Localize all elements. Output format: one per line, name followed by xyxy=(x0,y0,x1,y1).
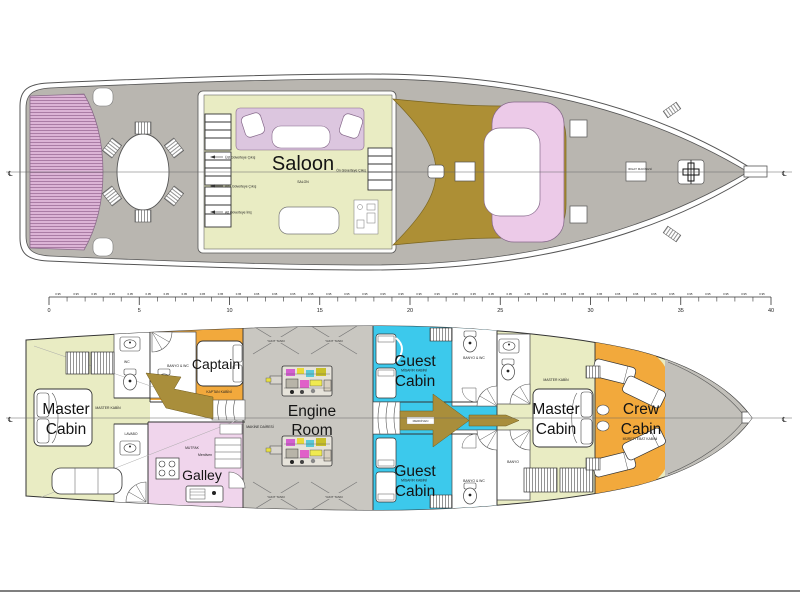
ruler-minor-label: 0.95 xyxy=(91,292,97,296)
toilet xyxy=(502,359,515,380)
toilet xyxy=(124,369,137,390)
ruler-minor-label: 0.95 xyxy=(290,292,296,296)
ruler-minor-label: 0.95 xyxy=(73,292,79,296)
crew-locker xyxy=(586,366,600,378)
guest-upper-bath-label: BANYO & WC xyxy=(463,356,485,360)
foredeck-hatch xyxy=(455,162,475,181)
crew-sink xyxy=(597,405,609,415)
ruler-major-label: 25 xyxy=(497,308,503,314)
ruler-minor-label: 0.95 xyxy=(597,292,603,296)
ruler-minor-label: 0.95 xyxy=(488,292,494,296)
wardrobe xyxy=(66,352,89,374)
ruler-major-label: 30 xyxy=(587,308,593,314)
ruler-major-label: 40 xyxy=(768,308,774,314)
guest-lower-label-1: Guest xyxy=(394,463,436,480)
ruler-minor-label: 0.95 xyxy=(759,292,765,296)
exit-lower-deck-label: Alt Güverteye İniş xyxy=(225,209,252,214)
ruler-minor-label: 0.95 xyxy=(218,292,224,296)
lavabo-label: LAVABO xyxy=(124,432,137,436)
galley-stairs xyxy=(215,438,241,468)
ruler-major-label: 15 xyxy=(317,308,323,314)
galley-label: Galley xyxy=(182,467,222,483)
ruler-minor-label: 0.95 xyxy=(146,292,152,296)
ruler-major-label: 10 xyxy=(226,308,232,314)
saloon-stairs-starboard xyxy=(368,148,392,190)
ruler-minor-label: 0.95 xyxy=(380,292,386,296)
ruler-minor-label: 0.95 xyxy=(362,292,368,296)
deck-plan-drawing: YAKIT TANKI xyxy=(0,0,800,599)
ruler-minor-label: 0.95 xyxy=(651,292,657,296)
exit-main-deck-label: Ana Güverteye Çıkış xyxy=(225,184,257,188)
engine-room-label-2: Room xyxy=(291,422,332,439)
captain-label: Captain xyxy=(192,356,240,372)
ruler-minor-label: 0.95 xyxy=(109,292,115,296)
stairs-label-galley: Merdiven xyxy=(198,453,212,457)
exit-upper-deck-label: Üst Güverteye Çıkış xyxy=(225,155,256,159)
bow-tip-fitting xyxy=(742,412,760,423)
master-fwd-sublabel: MASTER KABİN xyxy=(543,377,569,382)
aft-step-notch xyxy=(93,238,113,256)
centerline-mark-right: ℄ xyxy=(782,170,787,178)
wardrobe xyxy=(91,352,114,374)
guest-upper-sublabel: MİSAFİR KABİNİ xyxy=(401,368,427,373)
wc-label: WC xyxy=(124,360,130,364)
ruler-minor-label: 0.95 xyxy=(470,292,476,296)
galley-cabinet xyxy=(220,424,242,434)
master-aft-label-1: Master xyxy=(42,401,89,418)
ruler-minor-label: 0.95 xyxy=(164,292,170,296)
bow-cleat xyxy=(663,102,681,118)
crew-label-1: Crew xyxy=(623,401,660,418)
ruler-minor-label: 0.95 xyxy=(507,292,513,296)
ruler-minor-label: 0.95 xyxy=(741,292,747,296)
ruler-minor-label: 0.95 xyxy=(687,292,693,296)
crew-label-2: Cabin xyxy=(621,421,662,438)
windlass-label: IRGAT MAKİNESİ xyxy=(628,166,652,171)
guest-lower-bath-label: BANYO & WC xyxy=(463,479,485,483)
ruler-minor-label: 0.95 xyxy=(326,292,332,296)
centerline-mark-left-lower: ℄ xyxy=(8,416,13,424)
guest-upper-label-2: Cabin xyxy=(395,373,436,390)
yacht-deck-plan: YAKIT TANKI xyxy=(0,0,800,599)
washbasin xyxy=(120,337,140,351)
crew-locker xyxy=(586,458,600,470)
saloon-pantry-fixtures xyxy=(354,200,378,234)
chair xyxy=(135,122,151,134)
master-fwd-bath-label: BANYO xyxy=(507,460,519,464)
galley-sink-unit xyxy=(186,486,223,502)
toilet xyxy=(464,331,477,352)
upper-deck-plan: Saloon SALON Üst Güverteye Çıkış Ana Güv… xyxy=(6,74,792,270)
guest-lower-label-2: Cabin xyxy=(395,483,436,500)
galley-stove xyxy=(156,458,179,479)
ruler-major-label: 20 xyxy=(407,308,413,314)
ruler-minor-label: 0.95 xyxy=(272,292,278,296)
ruler-minor-label: 0.95 xyxy=(55,292,61,296)
bow-cleat xyxy=(663,226,681,242)
ruler-minor-label: 0.95 xyxy=(525,292,531,296)
centerline-mark-right-lower: ℄ xyxy=(782,416,787,424)
ruler-minor-label: 0.95 xyxy=(543,292,549,296)
ruler-minor-label: 0.95 xyxy=(182,292,188,296)
master-fwd-label-2: Cabin xyxy=(536,421,577,438)
scale-ruler: 00.950.950.950.950.9550.950.950.950.950.… xyxy=(47,292,774,314)
master-aft-sublabel: MASTER KABİN xyxy=(95,405,121,410)
foredeck-hatch-small xyxy=(428,165,444,178)
stairs-label-corridor: MERDİVEN xyxy=(413,418,429,423)
ruler-minor-label: 0.95 xyxy=(561,292,567,296)
guest-upper-label-1: Guest xyxy=(394,353,436,370)
master-aft-label-2: Cabin xyxy=(46,421,87,438)
ruler-minor-label: 0.95 xyxy=(236,292,242,296)
saloon-seating xyxy=(279,207,339,234)
bowsprit xyxy=(744,166,767,177)
lower-deck-plan: Master Cabin MASTER KABİN LAVABO WC BANY… xyxy=(6,318,792,516)
ruler-minor-label: 0.95 xyxy=(669,292,675,296)
ruler-minor-label: 0.95 xyxy=(344,292,350,296)
ruler-major-label: 5 xyxy=(138,308,141,314)
aft-step-notch xyxy=(93,88,113,106)
ruler-minor-label: 0.95 xyxy=(723,292,729,296)
ruler-major-label: 35 xyxy=(678,308,684,314)
saloon-sublabel: SALON xyxy=(297,180,309,184)
ruler-minor-label: 0.95 xyxy=(452,292,458,296)
ruler-minor-label: 0.95 xyxy=(705,292,711,296)
washbasin xyxy=(499,339,519,353)
ruler-minor-label: 0.95 xyxy=(434,292,440,296)
ruler-minor-label: 0.95 xyxy=(633,292,639,296)
galley-sublabel: MUTFAK xyxy=(185,446,199,450)
engine-room-label-1: Engine xyxy=(288,403,336,420)
master-fwd-label-1: Master xyxy=(532,401,579,418)
guest-lower-sublabel: MİSAFİR KABİNİ xyxy=(401,478,427,483)
wardrobe xyxy=(430,328,452,341)
ruler-minor-label: 0.95 xyxy=(416,292,422,296)
anchor-locker-hatch xyxy=(626,162,646,181)
captain-bath-label: BANYO & WC xyxy=(167,364,189,368)
engine-room-sublabel: MAKİNE DAİRESİ xyxy=(246,424,274,429)
wardrobe xyxy=(524,468,557,492)
ruler-minor-label: 0.95 xyxy=(615,292,621,296)
ruler-minor-label: 0.95 xyxy=(579,292,585,296)
deck-hatch xyxy=(570,206,587,223)
crew-sublabel: MÜRETTEBAT KABİNİ xyxy=(623,436,658,441)
chair xyxy=(135,210,151,222)
toilet xyxy=(464,483,477,504)
centerline-mark-left: ℄ xyxy=(8,170,13,178)
washbasin xyxy=(120,441,140,455)
ruler-minor-label: 0.95 xyxy=(200,292,206,296)
ruler-minor-label: 0.95 xyxy=(308,292,314,296)
master-aft-sofa xyxy=(52,468,122,494)
ruler-minor-label: 0.95 xyxy=(254,292,260,296)
captain-sublabel: KAPTAN KABİNİ xyxy=(206,389,231,394)
ruler-minor-label: 0.95 xyxy=(398,292,404,296)
crew-sink xyxy=(597,421,609,431)
wardrobe xyxy=(560,468,593,492)
deck-hatch xyxy=(570,120,587,137)
ruler-major-label: 0 xyxy=(47,308,50,314)
ruler-minor-label: 0.95 xyxy=(127,292,133,296)
